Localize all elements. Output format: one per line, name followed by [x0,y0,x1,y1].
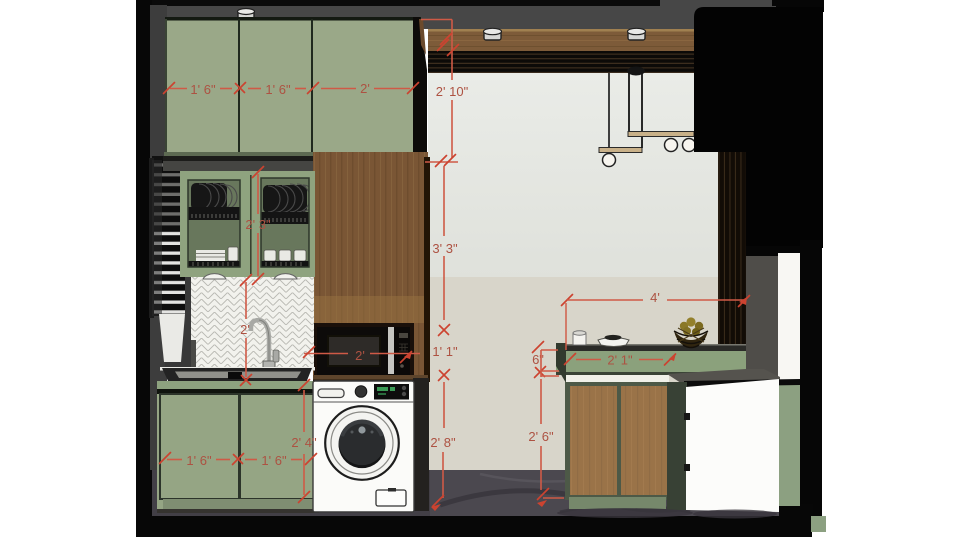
svg-text:1' 1": 1' 1" [432,344,458,359]
svg-text:2' 10": 2' 10" [436,84,469,99]
svg-text:3' 3": 3' 3" [432,241,458,256]
svg-text:2' 3": 2' 3" [245,217,271,232]
svg-text:1' 6": 1' 6" [186,453,212,468]
svg-text:2' 1": 2' 1" [607,353,633,368]
svg-text:2' 8": 2' 8" [430,435,456,450]
svg-text:2': 2' [240,322,250,337]
svg-text:2' 6": 2' 6" [528,429,554,444]
svg-text:6": 6" [532,352,544,367]
svg-text:4': 4' [650,290,660,305]
svg-text:2': 2' [355,348,365,363]
svg-text:1' 6": 1' 6" [261,453,287,468]
svg-text:1' 6": 1' 6" [190,82,216,97]
svg-text:2': 2' [360,81,370,96]
svg-text:2' 4": 2' 4" [291,435,317,450]
svg-text:1' 6": 1' 6" [265,82,291,97]
